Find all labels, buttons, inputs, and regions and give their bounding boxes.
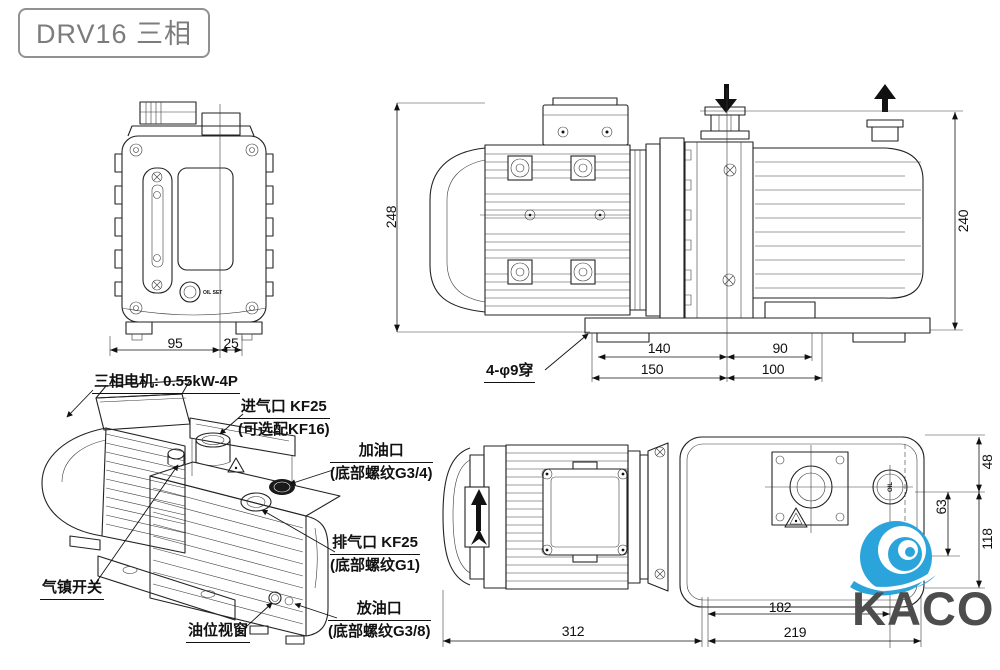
dim-63: 63 (933, 500, 949, 515)
iso-gas-ballast-knob (168, 449, 184, 467)
dim-240: 240 (955, 210, 971, 232)
dim-248: 248 (383, 206, 399, 228)
iso-oil-fill-cap (269, 479, 295, 495)
top-coupling (628, 443, 668, 591)
kaco-logo: KACO (840, 515, 995, 647)
front-sight-glass-strip (143, 168, 172, 293)
callout-gas-ballast: 气镇开关 (40, 577, 104, 600)
front-oil-port: OIL SET (180, 282, 222, 302)
iso-exhaust-port (241, 493, 271, 511)
callout-foot-holes: 4-φ9穿 (484, 360, 535, 383)
dim-90: 90 (773, 340, 788, 356)
iso-motor (42, 380, 190, 553)
dim-150: 150 (641, 361, 663, 377)
front-feet (126, 322, 262, 340)
top-motor (443, 445, 628, 589)
front-body (115, 136, 273, 322)
dim-182: 182 (769, 599, 791, 615)
side-exhaust-port (867, 120, 903, 141)
dim-48: 48 (979, 455, 995, 470)
front-terminal-box (128, 102, 254, 136)
side-coupling (630, 138, 691, 318)
side-base (585, 318, 930, 342)
callout-exhaust: 排气口 KF25 (底部螺纹G1) (330, 532, 420, 576)
dim-140: 140 (648, 340, 670, 356)
page-title: DRV16 三相 (18, 8, 210, 58)
dim-100: 100 (762, 361, 784, 377)
inlet-flow-arrow (715, 84, 737, 113)
drawing-page: DRV16 三相 (0, 0, 1000, 670)
callout-inlet: 进气口 KF25 (可选配KF16) (238, 396, 330, 440)
side-motor (430, 98, 630, 315)
front-oil-label: OIL SET (203, 290, 222, 296)
callout-oil-fill: 加油口 (底部螺纹G3/4) (330, 440, 433, 484)
front-panel (178, 168, 233, 270)
dim-95: 95 (168, 335, 183, 351)
exhaust-flow-arrow (874, 84, 896, 112)
iso-inlet-port (196, 433, 230, 466)
side-pump-body (685, 142, 923, 318)
callout-drain: 放油口 (底部螺纹G3/8) (328, 598, 431, 642)
side-inlet-port (701, 107, 749, 139)
warning-triangle-icon (785, 508, 807, 527)
dim-25: 25 (224, 335, 239, 351)
dim-219: 219 (784, 624, 806, 640)
top-oil-label: OIL (888, 482, 894, 492)
side-view (385, 80, 1000, 400)
callout-sight-glass: 油位视窗 (186, 620, 250, 643)
logo-text: KACO (852, 581, 994, 636)
callout-motor: 三相电机: 0.55kW-4P (92, 371, 240, 394)
front-view: OIL SET (60, 90, 310, 370)
dim-312: 312 (562, 623, 584, 639)
